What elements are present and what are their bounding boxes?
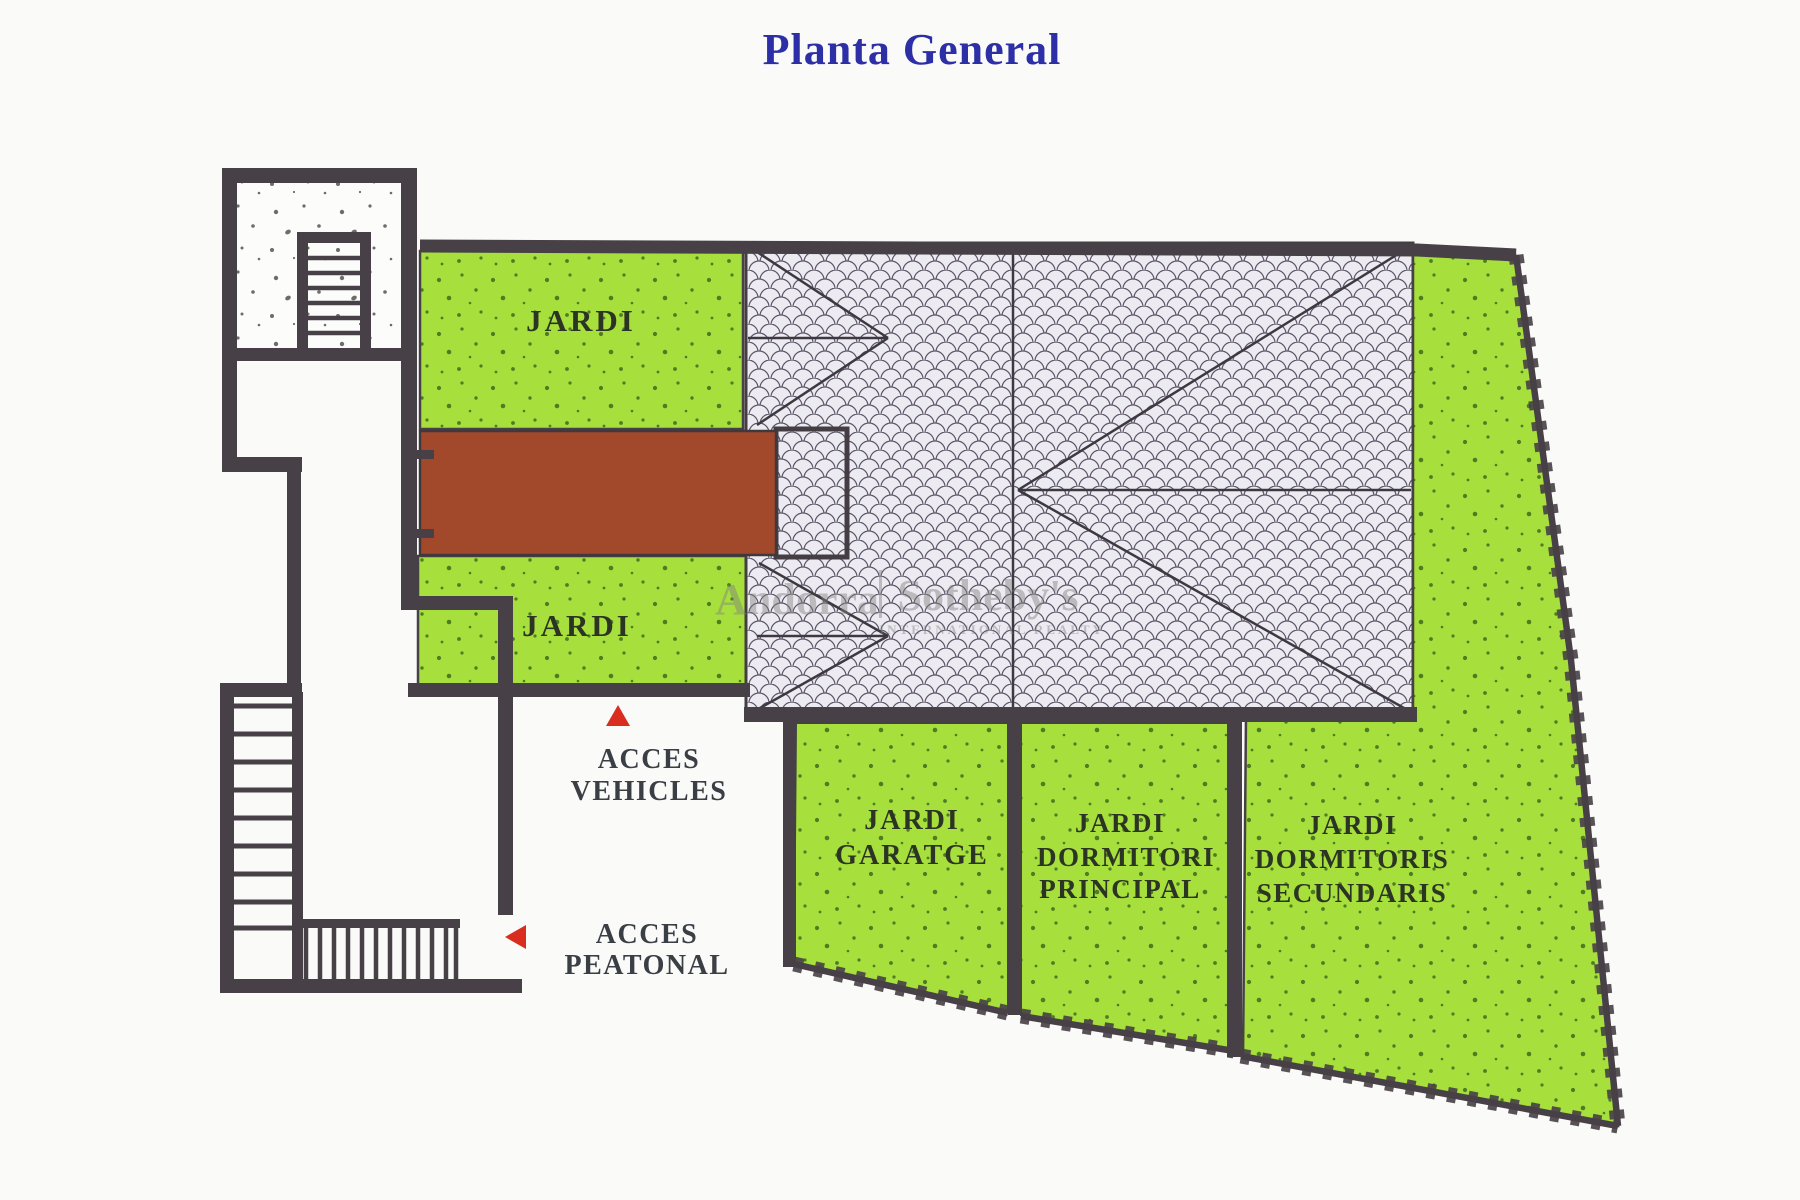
- roof-bottom-wall: [744, 707, 1417, 722]
- entry-room: [237, 183, 401, 350]
- garden-top: [420, 251, 743, 429]
- jardi-mid-label: JARDI: [522, 608, 632, 643]
- wall-step-right: [401, 596, 513, 610]
- garage-left-wall: [783, 707, 796, 967]
- terrace-strip: [420, 431, 776, 555]
- principal-line2: DORMITORI: [1037, 842, 1215, 872]
- watermark-subtitle: INTERNATIONAL REALTY: [879, 622, 1105, 637]
- watermark-divider: [879, 570, 882, 618]
- acces-peatonal-line2: PEATONAL: [565, 950, 730, 981]
- secundaris-line3: SECUNDARIS: [1257, 878, 1448, 908]
- acces-vehicles-line2: VEHICLES: [571, 776, 728, 807]
- wall-left-mid: [287, 457, 301, 697]
- jardi-garatge-line1: JARDI: [864, 805, 960, 836]
- principal-line1: JARDI: [1075, 808, 1165, 838]
- page-title: Planta General: [763, 25, 1062, 74]
- watermark-brand-right: Sotheby's: [898, 571, 1079, 620]
- secundaris-line1: JARDI: [1307, 810, 1397, 840]
- divider-garage-principal: [1008, 707, 1022, 1015]
- wall-right-inner: [401, 168, 417, 608]
- jardi-garatge-line2: GARATGE: [835, 840, 989, 871]
- wall-bottom: [220, 979, 522, 993]
- acces-peatonal-line1: ACCES: [596, 919, 698, 950]
- secundaris-line2: DORMITORIS: [1255, 844, 1450, 874]
- room-bottom-wall: [237, 348, 415, 361]
- watermark-brand-left: Andorra: [715, 575, 879, 624]
- garden-mid-bottom-wall: [408, 683, 750, 697]
- wall-top: [222, 168, 414, 183]
- floor-plan-drawing: Planta General: [0, 0, 1800, 1200]
- wall-driveway-left: [498, 608, 513, 915]
- wall-left-lower: [220, 690, 234, 993]
- principal-line3: PRINCIPAL: [1039, 874, 1201, 904]
- divider-principal-secundaris: [1227, 707, 1242, 1057]
- wall-left-upper: [222, 168, 237, 471]
- acces-vehicles-line1: ACCES: [598, 744, 700, 775]
- roof-skylight-box: [776, 429, 847, 557]
- floor-plan-page: Planta General: [0, 0, 1800, 1200]
- jardi-top-label: JARDI: [526, 303, 636, 338]
- roof: [746, 243, 1413, 713]
